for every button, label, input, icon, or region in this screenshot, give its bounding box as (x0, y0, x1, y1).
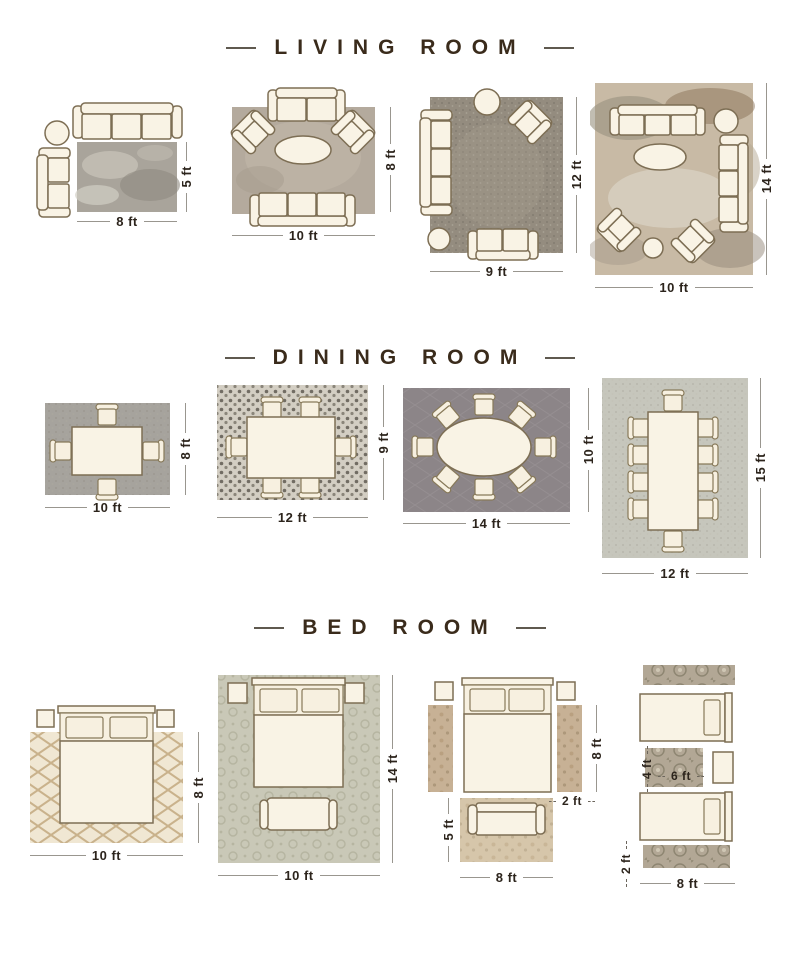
dining-layout-14x10 (400, 385, 575, 515)
bed-layout-10x8 (25, 700, 195, 850)
dim-bed-2-width: 10 ft (218, 868, 380, 883)
dim-bed-1-height: 8 ft (190, 732, 206, 843)
living-room-title: LIVING ROOM (274, 36, 525, 60)
dining-chair (143, 440, 164, 462)
dining-chair (697, 498, 718, 520)
dining-chair (299, 477, 321, 498)
dining-chair (261, 397, 283, 418)
dim-living-4-height: 14 ft (758, 83, 774, 275)
dim-living-3-height: 12 ft (568, 97, 584, 253)
nightstand (345, 683, 364, 703)
dim-dining-3-height: 10 ft (580, 388, 596, 512)
living-layout-10x8 (215, 85, 390, 240)
bed (462, 678, 553, 792)
bed (252, 678, 345, 787)
dining-chair (96, 479, 118, 500)
dim-living-1-width: 8 ft (77, 214, 177, 229)
sofa-two-seat (468, 229, 538, 260)
nightstand (37, 710, 54, 727)
rug (75, 142, 180, 212)
round-side-table (474, 89, 500, 115)
dim-living-4-width: 10 ft (595, 280, 753, 295)
dim-living-3-width: 9 ft (430, 264, 563, 279)
dining-chair (96, 404, 118, 425)
dining-table (648, 412, 698, 530)
dim-bed-4-width: 8 ft (640, 876, 735, 891)
dim-bed-1-width: 10 ft (30, 848, 183, 863)
dining-table (247, 417, 335, 478)
sofa-three-seat (250, 193, 355, 226)
dim-dining-2-height: 9 ft (375, 385, 391, 500)
sofa-three-seat-vertical (719, 135, 748, 232)
dim-living-1-height: 5 ft (178, 142, 194, 212)
dim-bed-3-runner-length: 8 ft (588, 705, 604, 792)
dim-living-2-height: 8 ft (382, 107, 398, 212)
dining-chair (697, 471, 718, 493)
dining-chair (473, 394, 495, 415)
loveseat-bench (468, 803, 545, 835)
living-layout-10x14 (590, 78, 765, 283)
nightstand (228, 683, 247, 703)
dim-bed-2-height: 14 ft (384, 675, 400, 863)
runner-rug-bottom (643, 845, 730, 868)
dining-chair (335, 436, 356, 458)
dim-bed-4-small-rug-width: 6 ft (658, 769, 704, 783)
rug-size-guide: LIVING ROOM DINING ROOM BED ROOM (0, 0, 800, 978)
dining-chair (628, 417, 649, 439)
dining-chair (226, 436, 247, 458)
title-dash-left (225, 357, 255, 359)
dining-chair (628, 498, 649, 520)
dim-bed-4-small-rug-height: 4 ft (640, 746, 654, 789)
round-side-table (643, 238, 663, 258)
dining-chair (473, 479, 495, 500)
sofa-three-seat (420, 110, 452, 215)
runner-rug-top (643, 665, 735, 685)
section-title-bed-room: BED ROOM (0, 616, 800, 640)
runner-rug-right (557, 705, 582, 792)
oval-coffee-table (275, 136, 331, 164)
oval-coffee-table (634, 144, 686, 170)
dining-table (72, 427, 142, 475)
dim-bed-3-foot-rug-width: 8 ft (460, 870, 553, 885)
title-dash-right (516, 627, 546, 629)
living-layout-9x12 (405, 80, 580, 275)
dining-chair (697, 417, 718, 439)
nightstand (157, 710, 174, 727)
dim-dining-4-width: 12 ft (602, 566, 748, 581)
sofa-two-seat (37, 148, 70, 217)
title-dash-left (226, 47, 256, 49)
dining-layout-10x8 (40, 395, 190, 510)
dim-bed-3-runner-width: 2 ft (549, 794, 593, 808)
dim-living-2-width: 10 ft (232, 228, 375, 243)
dining-room-title: DINING ROOM (273, 346, 528, 370)
bed-layout-10x14 (215, 670, 385, 870)
bed (58, 706, 155, 823)
dim-bed-3-foot-rug-height: 5 ft (440, 798, 456, 862)
dining-chair (628, 444, 649, 466)
nightstand (713, 752, 733, 783)
dim-dining-1-height: 8 ft (177, 403, 193, 495)
dining-layout-12x15 (600, 375, 760, 565)
title-dash-right (545, 357, 575, 359)
bench (260, 798, 337, 830)
dining-chair (628, 471, 649, 493)
round-side-table (714, 109, 738, 133)
dining-layout-12x9 (210, 380, 375, 510)
oval-dining-table (437, 418, 531, 476)
dining-chair (535, 436, 556, 458)
dim-dining-2-width: 12 ft (217, 510, 368, 525)
dim-dining-3-width: 14 ft (403, 516, 570, 531)
round-side-table (45, 121, 69, 145)
dim-dining-4-height: 15 ft (752, 378, 768, 558)
sofa-three-seat (73, 103, 182, 139)
dining-chair (662, 390, 684, 411)
dining-chair (412, 436, 433, 458)
title-dash-left (254, 627, 284, 629)
nightstand (435, 682, 453, 700)
dim-bed-4-runner-height: 2 ft (619, 841, 633, 873)
dining-chair (299, 397, 321, 418)
title-dash-right (544, 47, 574, 49)
nightstand (557, 682, 575, 700)
section-title-living-room: LIVING ROOM (0, 36, 800, 60)
sofa-three-seat (610, 105, 705, 135)
dining-chair (697, 444, 718, 466)
dining-chair (662, 531, 684, 552)
runner-rug-left (428, 705, 453, 792)
sofa-two-seat (268, 88, 345, 121)
dim-dining-1-width: 10 ft (45, 500, 170, 515)
bed-room-title: BED ROOM (302, 616, 498, 640)
section-title-dining-room: DINING ROOM (0, 346, 800, 370)
round-side-table (428, 228, 450, 250)
twin-bed-lower (640, 792, 732, 841)
dining-chair (261, 477, 283, 498)
dining-chair (50, 440, 71, 462)
twin-bed-upper (640, 693, 732, 742)
